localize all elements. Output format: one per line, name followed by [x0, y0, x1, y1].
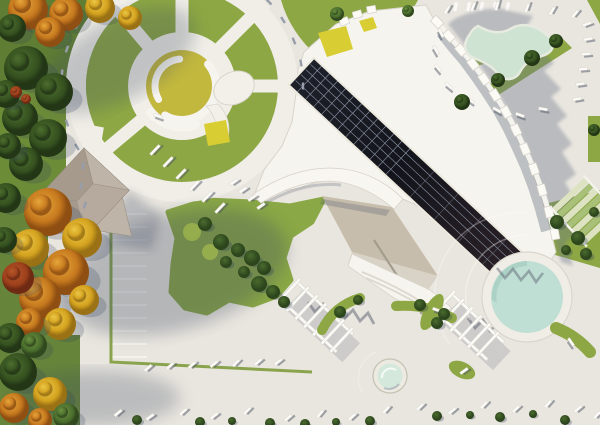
bush [220, 256, 232, 268]
bush [589, 207, 599, 217]
tree-highlight [30, 194, 52, 216]
bush [132, 415, 142, 425]
bush [561, 245, 571, 255]
tree-highlight [590, 126, 595, 131]
grass-right-edge [588, 116, 600, 162]
tree-highlight [37, 381, 52, 396]
tree-highlight [3, 397, 17, 411]
tree-highlight [12, 88, 17, 93]
bush [266, 285, 280, 299]
bush [550, 215, 564, 229]
tree-highlight [526, 52, 533, 59]
sun-lounger [581, 52, 590, 56]
bush [495, 412, 505, 422]
plaza-bench [302, 83, 304, 90]
bush [432, 411, 442, 421]
bush [251, 276, 267, 292]
bush [198, 217, 212, 231]
tree-highlight [551, 36, 557, 42]
sun-lounger [578, 67, 587, 71]
tree-highlight [4, 358, 21, 375]
bush [560, 415, 570, 425]
tree-highlight [39, 21, 53, 35]
tree-highlight [40, 78, 57, 95]
tree-highlight [332, 9, 338, 15]
bush [580, 248, 592, 260]
tree-highlight [20, 312, 33, 325]
site-plan-canvas [0, 0, 600, 425]
bush [228, 417, 236, 425]
bush [238, 266, 250, 278]
tree-highlight [73, 289, 87, 303]
tree-highlight [121, 9, 132, 20]
tree-highlight [24, 335, 36, 347]
tree-highlight [22, 95, 27, 100]
tree-highlight [67, 223, 85, 241]
tree-highlight [6, 266, 20, 280]
tree-highlight [493, 75, 499, 81]
bush [466, 411, 474, 419]
tree-highlight [456, 96, 463, 103]
bush [231, 243, 245, 257]
bush [257, 261, 271, 275]
plaza-yellow-wedge [204, 120, 230, 146]
aerial-site-render [0, 0, 600, 425]
tree-highlight [404, 7, 409, 12]
tree-highlight [56, 406, 68, 418]
bush [353, 295, 363, 305]
bush [571, 231, 585, 245]
tree-highlight [53, 1, 68, 16]
tree-highlight [10, 52, 30, 72]
bush [529, 410, 537, 418]
bush [431, 317, 443, 329]
bush [414, 299, 426, 311]
bush [334, 306, 346, 318]
tree-highlight [31, 411, 42, 422]
bush [213, 234, 229, 250]
bush [244, 250, 260, 266]
tree-highlight [2, 18, 15, 31]
bush [278, 296, 290, 308]
tree-highlight [49, 255, 70, 276]
tree-highlight [34, 124, 51, 141]
